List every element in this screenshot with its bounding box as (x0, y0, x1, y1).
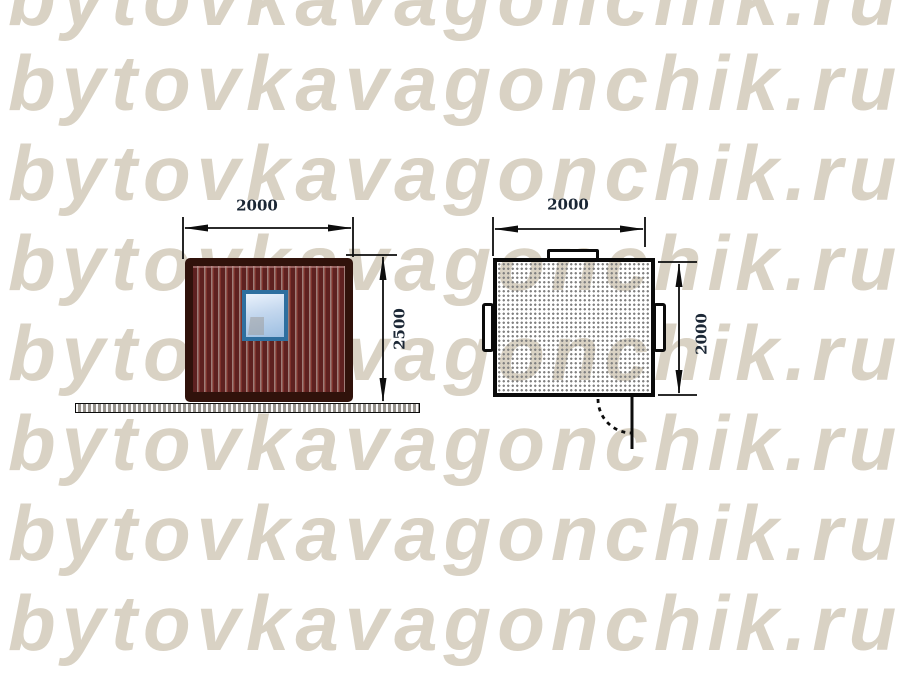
plan-window-left (482, 303, 494, 352)
drawing-canvas: bytovkavagonchik.ru bytovkavagonchik.ru … (0, 0, 900, 675)
cabin-window (242, 290, 288, 341)
watermark-text: bytovkavagonchik.ru (8, 0, 900, 37)
watermark-text: bytovkavagonchik.ru (8, 494, 900, 572)
watermark-text: bytovkavagonchik.ru (8, 44, 900, 122)
watermark-text: bytovkavagonchik.ru (8, 224, 900, 302)
plan-depth-label: 2000 (695, 313, 710, 355)
plan-width-label: 2000 (547, 198, 589, 213)
ground-line (75, 403, 420, 413)
watermark-text: bytovkavagonchik.ru (8, 314, 900, 392)
watermark-text: bytovkavagonchik.ru (8, 134, 900, 212)
plan-window-right (653, 303, 666, 352)
plan-window-top (547, 249, 599, 261)
cabin-plan-view (493, 258, 655, 397)
watermark-text: bytovkavagonchik.ru (8, 584, 900, 662)
watermark-text: bytovkavagonchik.ru (8, 404, 900, 482)
front-width-label: 2000 (236, 199, 278, 214)
front-height-label: 2500 (393, 308, 408, 350)
